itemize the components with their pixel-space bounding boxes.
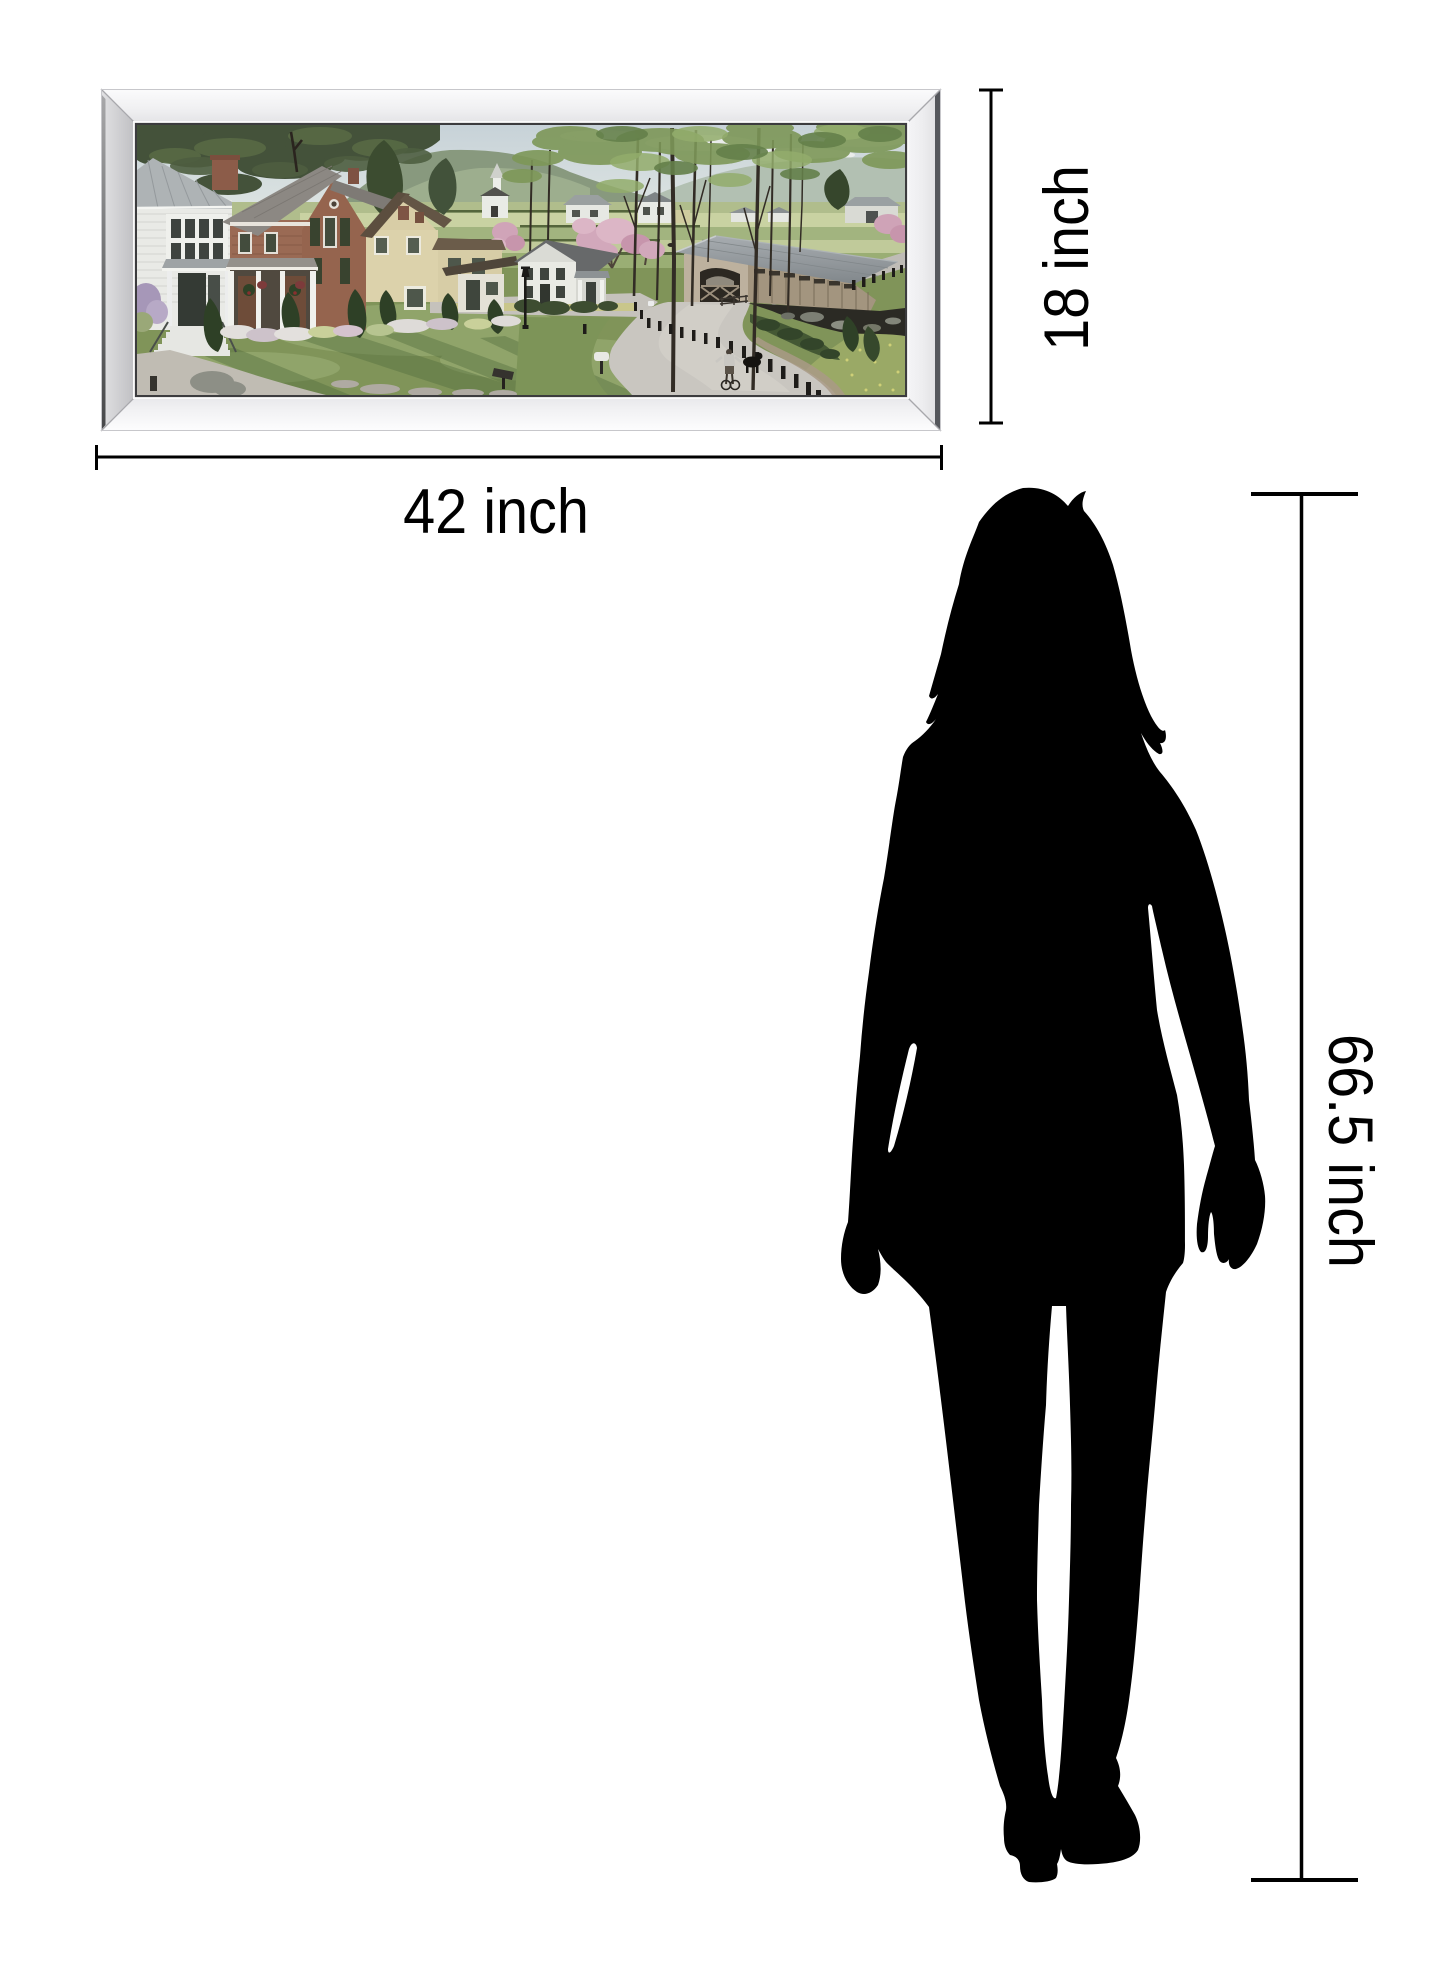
svg-text:18 inch: 18 inch <box>1031 165 1102 351</box>
svg-text:66.5 inch: 66.5 inch <box>1315 1034 1386 1268</box>
svg-text:42 inch: 42 inch <box>403 476 589 547</box>
